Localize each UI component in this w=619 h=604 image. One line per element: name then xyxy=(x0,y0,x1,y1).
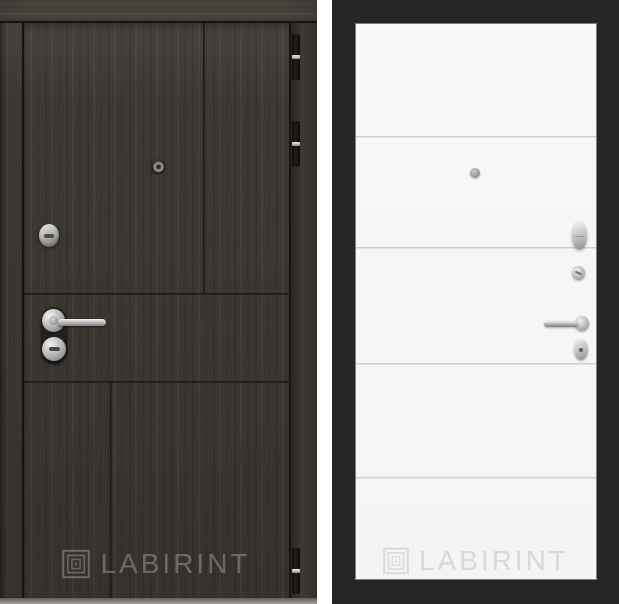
door-product-image: LABIRINT LABIRINT xyxy=(0,0,619,604)
left-door-frame-left xyxy=(0,23,22,604)
leaf-groove-vertical-top xyxy=(203,23,205,293)
left-door-photo: LABIRINT xyxy=(0,0,317,604)
thumbturn-knob-icon xyxy=(572,266,585,280)
leaf-groove-line-4 xyxy=(356,477,596,479)
brand-watermark-text: LABIRINT xyxy=(419,547,569,575)
hinge-top-icon xyxy=(292,34,300,80)
key-cylinder-lower-icon xyxy=(42,337,66,361)
lever-handle-icon xyxy=(544,321,578,327)
keyhole-escutcheon-icon xyxy=(574,339,588,360)
leaf-groove-line-1 xyxy=(356,136,596,138)
leaf-groove-horizontal-2 xyxy=(24,381,289,383)
hinge-middle-icon xyxy=(292,121,300,167)
brand-watermark-right: LABIRINT xyxy=(356,542,596,580)
peephole-icon xyxy=(470,168,480,178)
left-door-frame-top xyxy=(0,0,317,21)
leaf-groove-horizontal-1 xyxy=(24,293,289,295)
floor-strip xyxy=(0,598,317,604)
leaf-groove-line-2 xyxy=(356,247,596,249)
cylinder-knob-icon xyxy=(572,222,587,250)
hinge-bottom-icon xyxy=(292,548,300,594)
labyrinth-logo-icon xyxy=(62,548,90,580)
right-door-photo: LABIRINT xyxy=(332,0,619,604)
right-door-leaf xyxy=(356,24,596,579)
left-door-jamb xyxy=(291,23,317,604)
leaf-groove-line-3 xyxy=(356,363,596,365)
key-cylinder-upper-icon xyxy=(39,224,59,247)
brand-watermark-left: LABIRINT xyxy=(24,545,289,583)
lever-handle-icon xyxy=(58,319,106,326)
brand-watermark-text: LABIRINT xyxy=(100,550,250,578)
labyrinth-logo-icon xyxy=(383,546,409,576)
peephole-icon xyxy=(152,161,165,174)
